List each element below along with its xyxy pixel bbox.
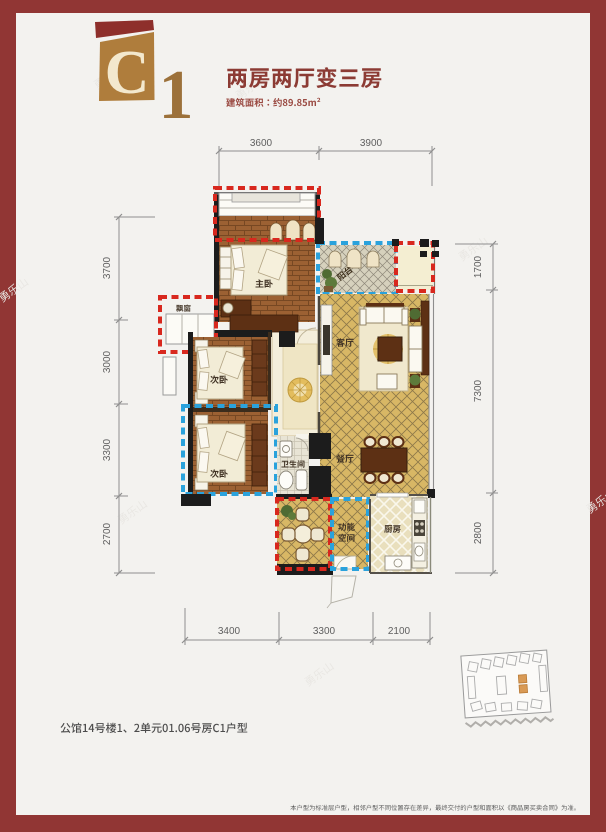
svg-text:C: C — [105, 39, 150, 107]
svg-text:3600: 3600 — [250, 138, 273, 149]
svg-text:1700: 1700 — [473, 255, 484, 278]
svg-text:2700: 2700 — [102, 522, 113, 545]
svg-text:3700: 3700 — [102, 256, 113, 279]
svg-text:2800: 2800 — [473, 521, 484, 544]
svg-text:1: 1 — [159, 57, 194, 134]
svg-text:3900: 3900 — [360, 138, 383, 149]
svg-text:2100: 2100 — [388, 626, 411, 637]
svg-text:7300: 7300 — [473, 379, 484, 402]
svg-text:3300: 3300 — [313, 626, 336, 637]
svg-text:3000: 3000 — [102, 350, 113, 373]
svg-text:3400: 3400 — [218, 626, 241, 637]
svg-text:3300: 3300 — [102, 438, 113, 461]
